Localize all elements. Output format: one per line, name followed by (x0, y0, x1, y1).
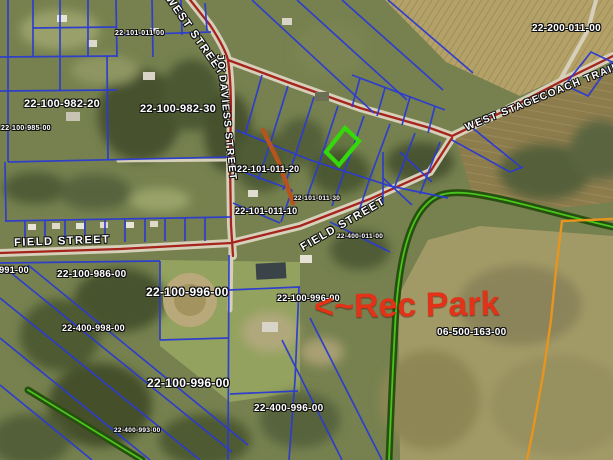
ballfield (163, 273, 217, 327)
map-canvas[interactable]: 22-101-011-0022-100-982-2022-100-982-302… (0, 0, 613, 460)
aerial-map (0, 0, 613, 460)
aerial-background (0, 0, 613, 460)
